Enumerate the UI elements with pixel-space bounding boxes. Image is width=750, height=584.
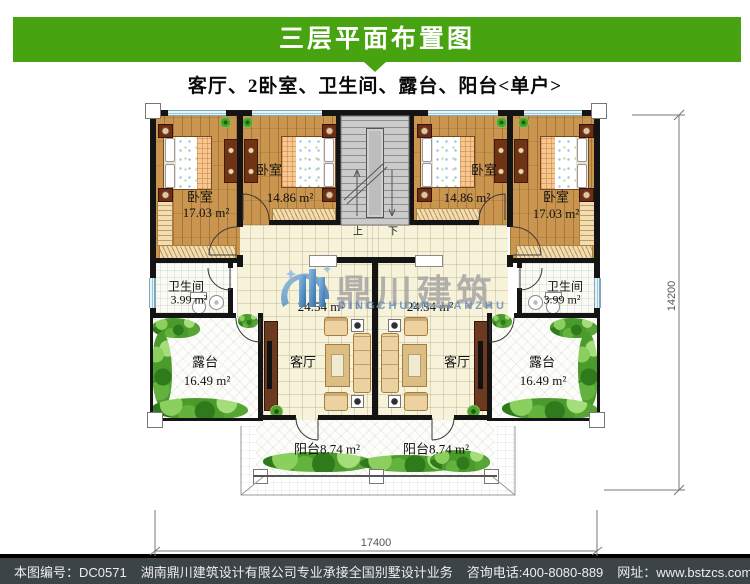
watermark-subtext: DINGCHUAN JIANZHU bbox=[338, 300, 507, 312]
room-label: 卧室 bbox=[543, 187, 569, 206]
room-area: 17.03 m² bbox=[533, 206, 580, 222]
room-area: 14.86 m² bbox=[267, 190, 314, 206]
dingchuan-logo-icon bbox=[277, 263, 335, 317]
room-label: 露台 bbox=[192, 352, 218, 371]
dimension-height: 14200 bbox=[666, 281, 678, 312]
room-label: 卧室 bbox=[471, 160, 497, 179]
room-label: 阳台8.74 m² bbox=[294, 439, 360, 458]
stair-up-label: 上 bbox=[353, 223, 363, 238]
room-area: 14.86 m² bbox=[444, 190, 491, 206]
page: 三层平面布置图 客厅、2卧室、卫生间、露台、阳台<单户> bbox=[0, 0, 750, 584]
room-area: 16.49 m² bbox=[184, 373, 231, 389]
room-label: 客厅 bbox=[444, 352, 470, 371]
stair-down-label: 下 bbox=[388, 223, 398, 238]
dimension-width: 17400 bbox=[361, 537, 392, 549]
room-label: 客厅 bbox=[290, 352, 316, 371]
room-label: 卧室 bbox=[187, 187, 213, 206]
room-area: 3.99 m² bbox=[544, 293, 581, 308]
room-area: 17.03 m² bbox=[183, 205, 230, 221]
room-area: 16.49 m² bbox=[520, 373, 567, 389]
room-area: 3.99 m² bbox=[171, 293, 208, 308]
room-label: 阳台8.74 m² bbox=[403, 439, 469, 458]
room-label: 卧室 bbox=[256, 160, 282, 179]
room-label: 露台 bbox=[529, 352, 555, 371]
